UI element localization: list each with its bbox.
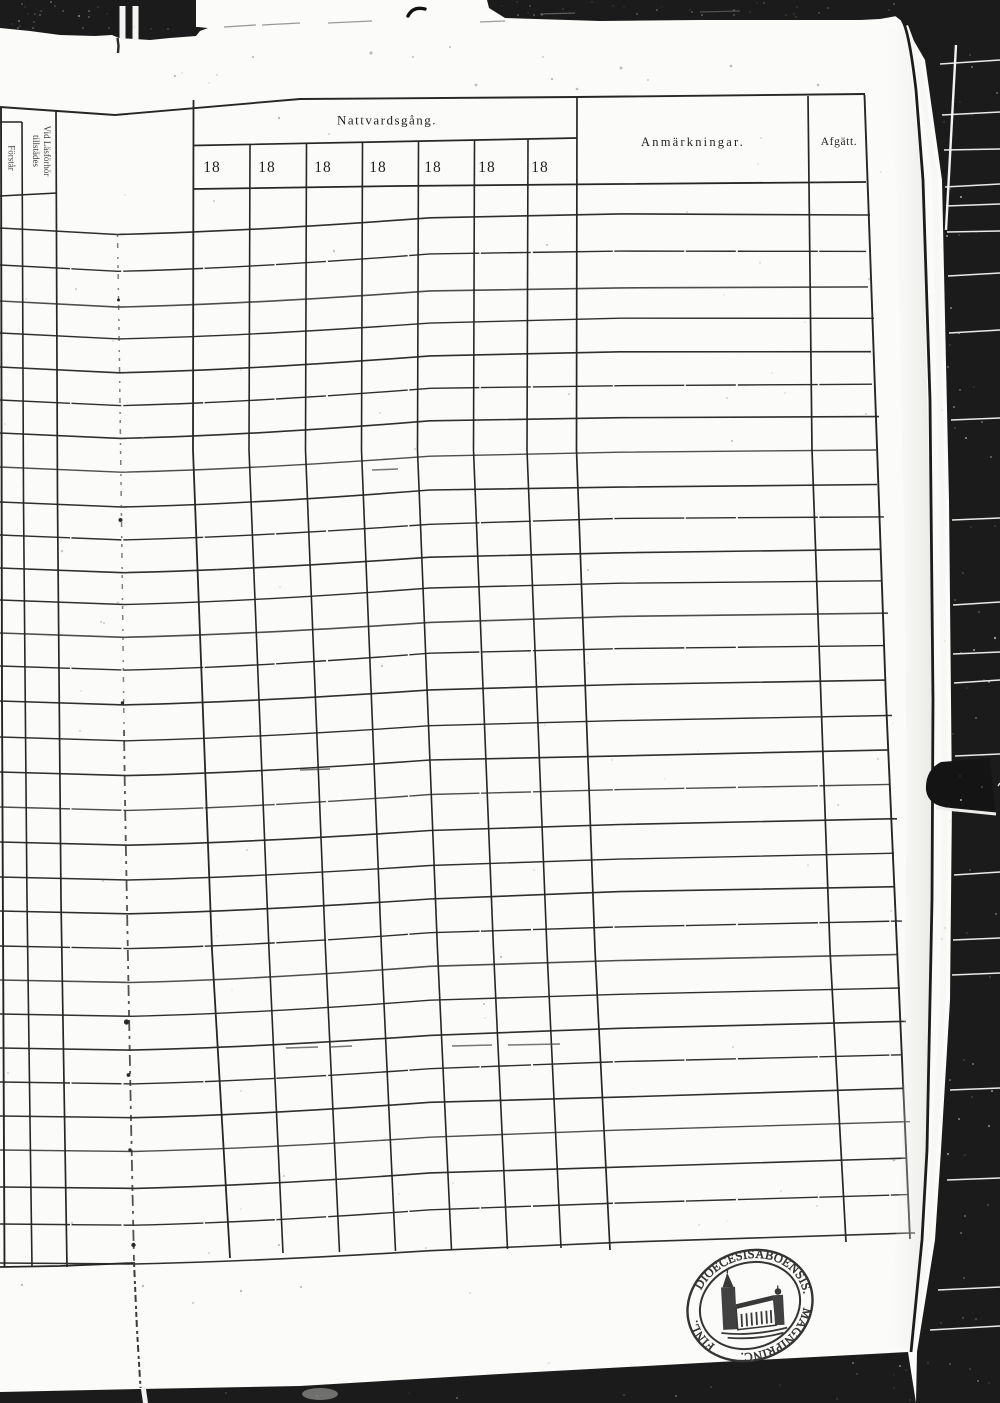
svg-text:Anmärkningar.: Anmärkningar. <box>641 135 745 149</box>
svg-text:Nattvardsgång.: Nattvardsgång. <box>337 113 437 128</box>
svg-text:18: 18 <box>369 159 387 176</box>
svg-text:tillstädes: tillstädes <box>31 135 41 167</box>
svg-text:Vid Läsförhör: Vid Läsförhör <box>42 126 52 177</box>
svg-text:Förstår: Förstår <box>7 145 17 171</box>
svg-text:18: 18 <box>258 159 276 176</box>
svg-text:18: 18 <box>203 159 221 176</box>
svg-text:18: 18 <box>314 159 332 176</box>
svg-text:18: 18 <box>531 159 549 176</box>
svg-text:18: 18 <box>478 159 496 176</box>
svg-text:18: 18 <box>424 159 442 176</box>
svg-text:Afgätt.: Afgätt. <box>821 136 857 148</box>
